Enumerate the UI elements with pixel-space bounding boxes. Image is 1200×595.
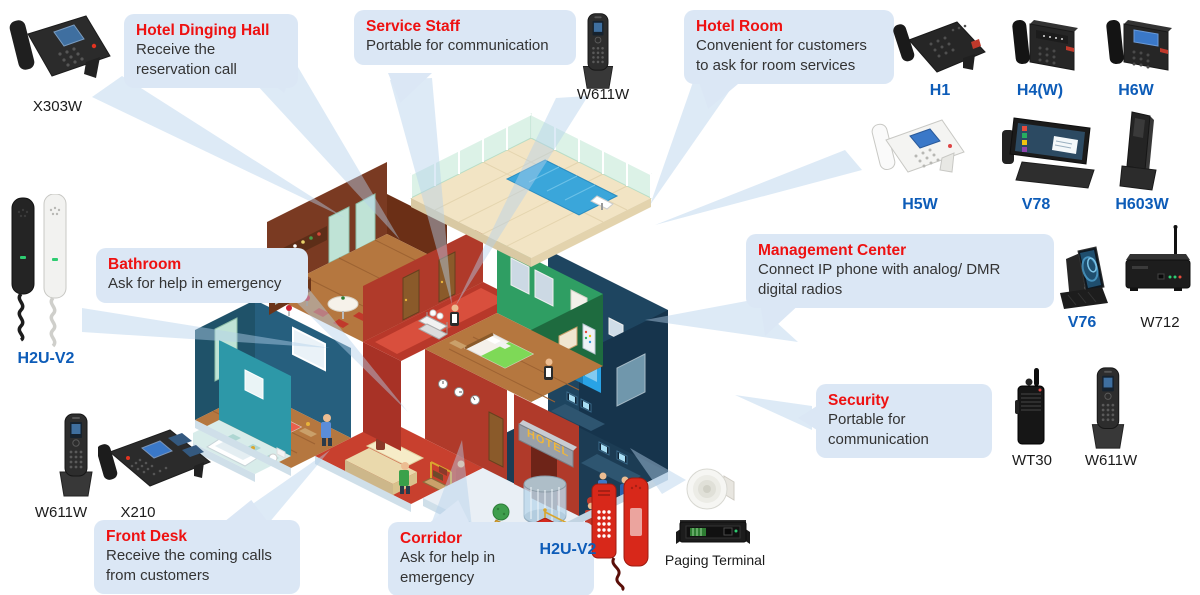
- paging-amplifier-image: [676, 516, 750, 546]
- w712-gateway-image: [1118, 224, 1196, 306]
- product-label-w611w-service: W611W: [568, 86, 638, 103]
- callout-body-line: communication: [828, 430, 980, 449]
- product-label-w611w-security: W611W: [1078, 452, 1144, 469]
- w611w-handset-image: [574, 10, 622, 92]
- callout-body-line: to ask for room services: [696, 56, 882, 75]
- h5w-phone-image: [866, 106, 974, 196]
- callout-body-line: Portable for communication: [366, 36, 564, 55]
- product-label-h1: H1: [905, 82, 975, 100]
- callout-hotel-room: Hotel Room Convenient for customers to a…: [684, 10, 894, 84]
- product-label-h6w: H6W: [1098, 82, 1174, 100]
- product-label-w611w-frontdesk: W611W: [28, 504, 94, 521]
- v76-dock-image: [1052, 233, 1112, 315]
- callout-service-staff: Service Staff Portable for communication: [354, 10, 576, 65]
- h6w-phone-image: [1100, 10, 1188, 84]
- callout-hotel-dining-hall: Hotel Dinging Hall Receive the reservati…: [124, 14, 298, 88]
- product-label-x303w: X303W: [10, 98, 105, 115]
- v78-videophone-image: [998, 110, 1106, 196]
- product-label-v76: V76: [1052, 314, 1112, 332]
- callout-title: Service Staff: [366, 17, 564, 36]
- callout-body-line: Portable for: [828, 410, 980, 429]
- h603w-phone-image: [1112, 108, 1168, 196]
- product-label-h4w: H4(W): [1004, 82, 1076, 100]
- callout-title: Front Desk: [106, 527, 288, 546]
- w611w-handset-image: [50, 410, 102, 500]
- h1-phone-image: [893, 12, 993, 84]
- wt30-walkie-talkie-image: [1006, 366, 1056, 452]
- hotel-solution-infographic: HOTEL: [0, 0, 1200, 595]
- callout-body-line: Connect IP phone with analog/ DMR: [758, 260, 1042, 279]
- callout-front-desk: Front Desk Receive the coming calls from…: [94, 520, 300, 594]
- callout-title: Management Center: [758, 241, 1042, 260]
- h2u-v2-red-phone-image: [586, 476, 654, 592]
- callout-body-line: reservation call: [136, 60, 286, 79]
- callout-body-line: digital radios: [758, 280, 1042, 299]
- product-label-v78: V78: [998, 196, 1074, 214]
- callout-title: Security: [828, 391, 980, 410]
- callout-bathroom: Bathroom Ask for help in emergency: [96, 248, 308, 303]
- callout-title: Hotel Dinging Hall: [136, 21, 286, 40]
- product-label-h2u-corridor: H2U-V2: [528, 541, 608, 559]
- callout-body-line: Receive the coming calls: [106, 546, 288, 565]
- ceiling-speaker-image: [682, 466, 736, 514]
- h4w-phone-image: [1006, 10, 1094, 84]
- callout-body-line: Ask for help in emergency: [108, 274, 296, 293]
- callout-body-line: from customers: [106, 566, 288, 585]
- x303w-phone-image: [6, 4, 118, 96]
- callout-management-center: Management Center Connect IP phone with …: [746, 234, 1054, 308]
- callout-body-line: Convenient for customers: [696, 36, 882, 55]
- product-label-wt30: WT30: [1002, 452, 1062, 469]
- product-label-paging-terminal: Paging Terminal: [660, 552, 770, 568]
- callout-title: Hotel Room: [696, 17, 882, 36]
- product-label-x210: X210: [108, 504, 168, 521]
- callout-security: Security Portable for communication: [816, 384, 992, 458]
- x210-phone-image: [98, 422, 216, 502]
- product-label-h5w: H5W: [880, 196, 960, 214]
- callout-body-line: emergency: [400, 568, 582, 587]
- h2u-v2-handsets-image: [8, 194, 72, 352]
- callout-body-line: Receive the: [136, 40, 286, 59]
- w611w-handset-image: [1082, 364, 1134, 452]
- product-label-h2u-bathroom: H2U-V2: [8, 350, 84, 368]
- product-label-w712: W712: [1128, 314, 1192, 331]
- callout-title: Bathroom: [108, 255, 296, 274]
- product-label-h603w: H603W: [1106, 196, 1178, 214]
